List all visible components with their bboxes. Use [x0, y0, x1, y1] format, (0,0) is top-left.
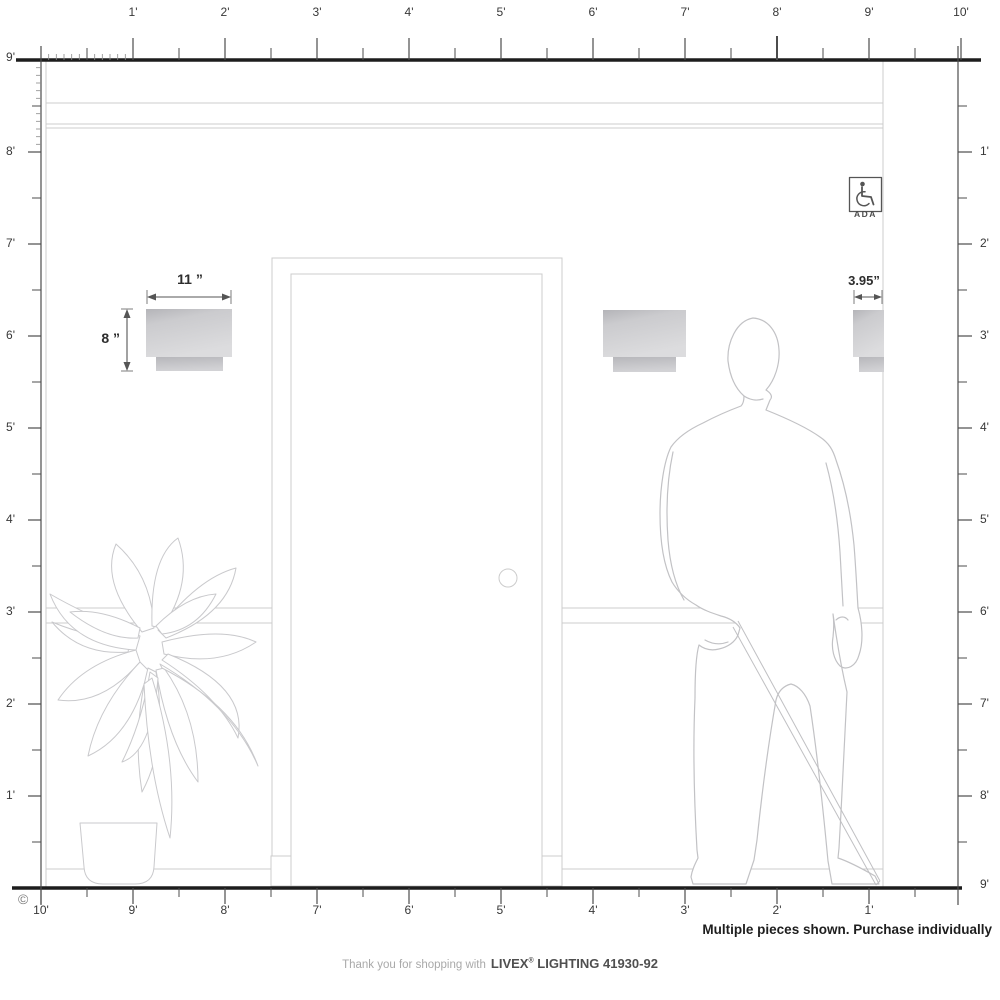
wall-sconce-left — [146, 309, 232, 371]
ruler-label-top: 3' — [297, 5, 337, 19]
person-silhouette — [660, 318, 879, 884]
ada-label: ADA — [848, 209, 883, 219]
ada-wheelchair-icon — [850, 178, 882, 212]
potted-plant — [50, 538, 258, 884]
ruler-label-right: 6' — [980, 604, 1000, 618]
ruler-label-left: 2' — [0, 696, 15, 710]
dimension-height-label: 8 ” — [84, 330, 120, 346]
ruler-label-bottom: 9' — [113, 903, 153, 917]
ruler-label-right: 3' — [980, 328, 1000, 342]
footer-text: Thank you for shopping withLIVEX® LIGHTI… — [0, 956, 1000, 971]
ruler-label-right: 9' — [980, 877, 1000, 891]
ruler-label-top: 10' — [941, 5, 981, 19]
ruler-label-right: 7' — [980, 696, 1000, 710]
ruler-label-top: 2' — [205, 5, 245, 19]
ruler-label-right: 4' — [980, 420, 1000, 434]
door — [271, 258, 562, 886]
scene-drawing — [0, 0, 1000, 1000]
ruler-label-left: 8' — [0, 144, 15, 158]
ruler-label-bottom: 6' — [389, 903, 429, 917]
dimension-width-line — [147, 290, 231, 304]
ruler-label-right: 8' — [980, 788, 1000, 802]
footer-prefix: Thank you for shopping with — [342, 959, 486, 971]
ruler-label-left: 6' — [0, 328, 15, 342]
ruler-label-bottom: 8' — [205, 903, 245, 917]
ruler-label-top: 5' — [481, 5, 521, 19]
ruler-label-bottom: 5' — [481, 903, 521, 917]
ruler-label-left: 4' — [0, 512, 15, 526]
ruler-label-left: 7' — [0, 236, 15, 250]
ruler-label-left: 9' — [0, 50, 15, 64]
purchase-note: Multiple pieces shown. Purchase individu… — [702, 922, 992, 937]
ruler-label-bottom: 1' — [849, 903, 889, 917]
ruler-label-right: 5' — [980, 512, 1000, 526]
ruler-label-top: 7' — [665, 5, 705, 19]
ruler-label-left: 1' — [0, 788, 15, 802]
ruler-label-bottom: 4' — [573, 903, 613, 917]
dimension-depth-line — [854, 290, 882, 304]
plant-pot — [80, 823, 157, 884]
ruler-label-right: 2' — [980, 236, 1000, 250]
ruler-label-left: 3' — [0, 604, 15, 618]
ruler-label-bottom: 3' — [665, 903, 705, 917]
ruler-label-top: 6' — [573, 5, 613, 19]
ruler-label-bottom: 2' — [757, 903, 797, 917]
ruler-label-top: 8' — [757, 5, 797, 19]
dimension-width-label: 11 ” — [160, 271, 220, 287]
ruler-label-top: 9' — [849, 5, 889, 19]
ruler-label-top: 4' — [389, 5, 429, 19]
ruler-label-top: 1' — [113, 5, 153, 19]
ruler-label-right: 1' — [980, 144, 1000, 158]
brand-name: LIVEX® LIGHTING 41930-92 — [491, 956, 658, 971]
dimension-height-line — [121, 309, 133, 371]
copyright-symbol: © — [18, 891, 28, 907]
product-scale-diagram: 1' 2' 3' 4' 5' 6' 7' 8' 9' 10' 9' 8' 7' … — [0, 0, 1000, 1000]
door-knob — [499, 569, 517, 587]
ruler-label-bottom: 7' — [297, 903, 337, 917]
wall-sconce-middle — [603, 310, 686, 372]
wall-sconce-right-profile — [853, 310, 884, 372]
ruler-label-left: 5' — [0, 420, 15, 434]
dimension-depth-label: 3.95” — [838, 273, 890, 288]
